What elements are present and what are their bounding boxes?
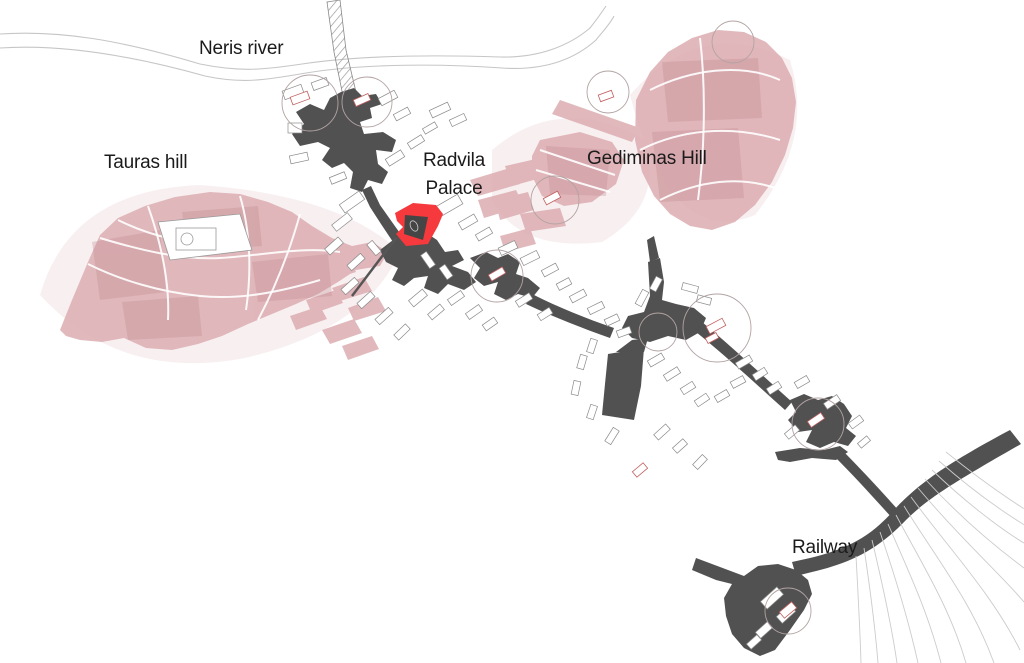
map-canvas: Neris river Tauras hill Radvila Palace G…: [0, 0, 1024, 663]
pedestrian-bridge: [327, 0, 356, 96]
label-tauras-hill: Tauras hill: [104, 149, 187, 177]
label-gediminas-hill: Gediminas Hill: [587, 145, 707, 173]
label-neris-river: Neris river: [199, 35, 283, 63]
neris-river-lines: [0, 6, 614, 80]
label-railway: Railway: [792, 534, 857, 562]
label-radvila-palace: Radvila Palace: [408, 147, 500, 203]
label-radvila-line1: Radvila: [423, 150, 485, 171]
label-radvila-line2: Palace: [426, 178, 483, 199]
vilnius-route-map: [0, 0, 1024, 663]
